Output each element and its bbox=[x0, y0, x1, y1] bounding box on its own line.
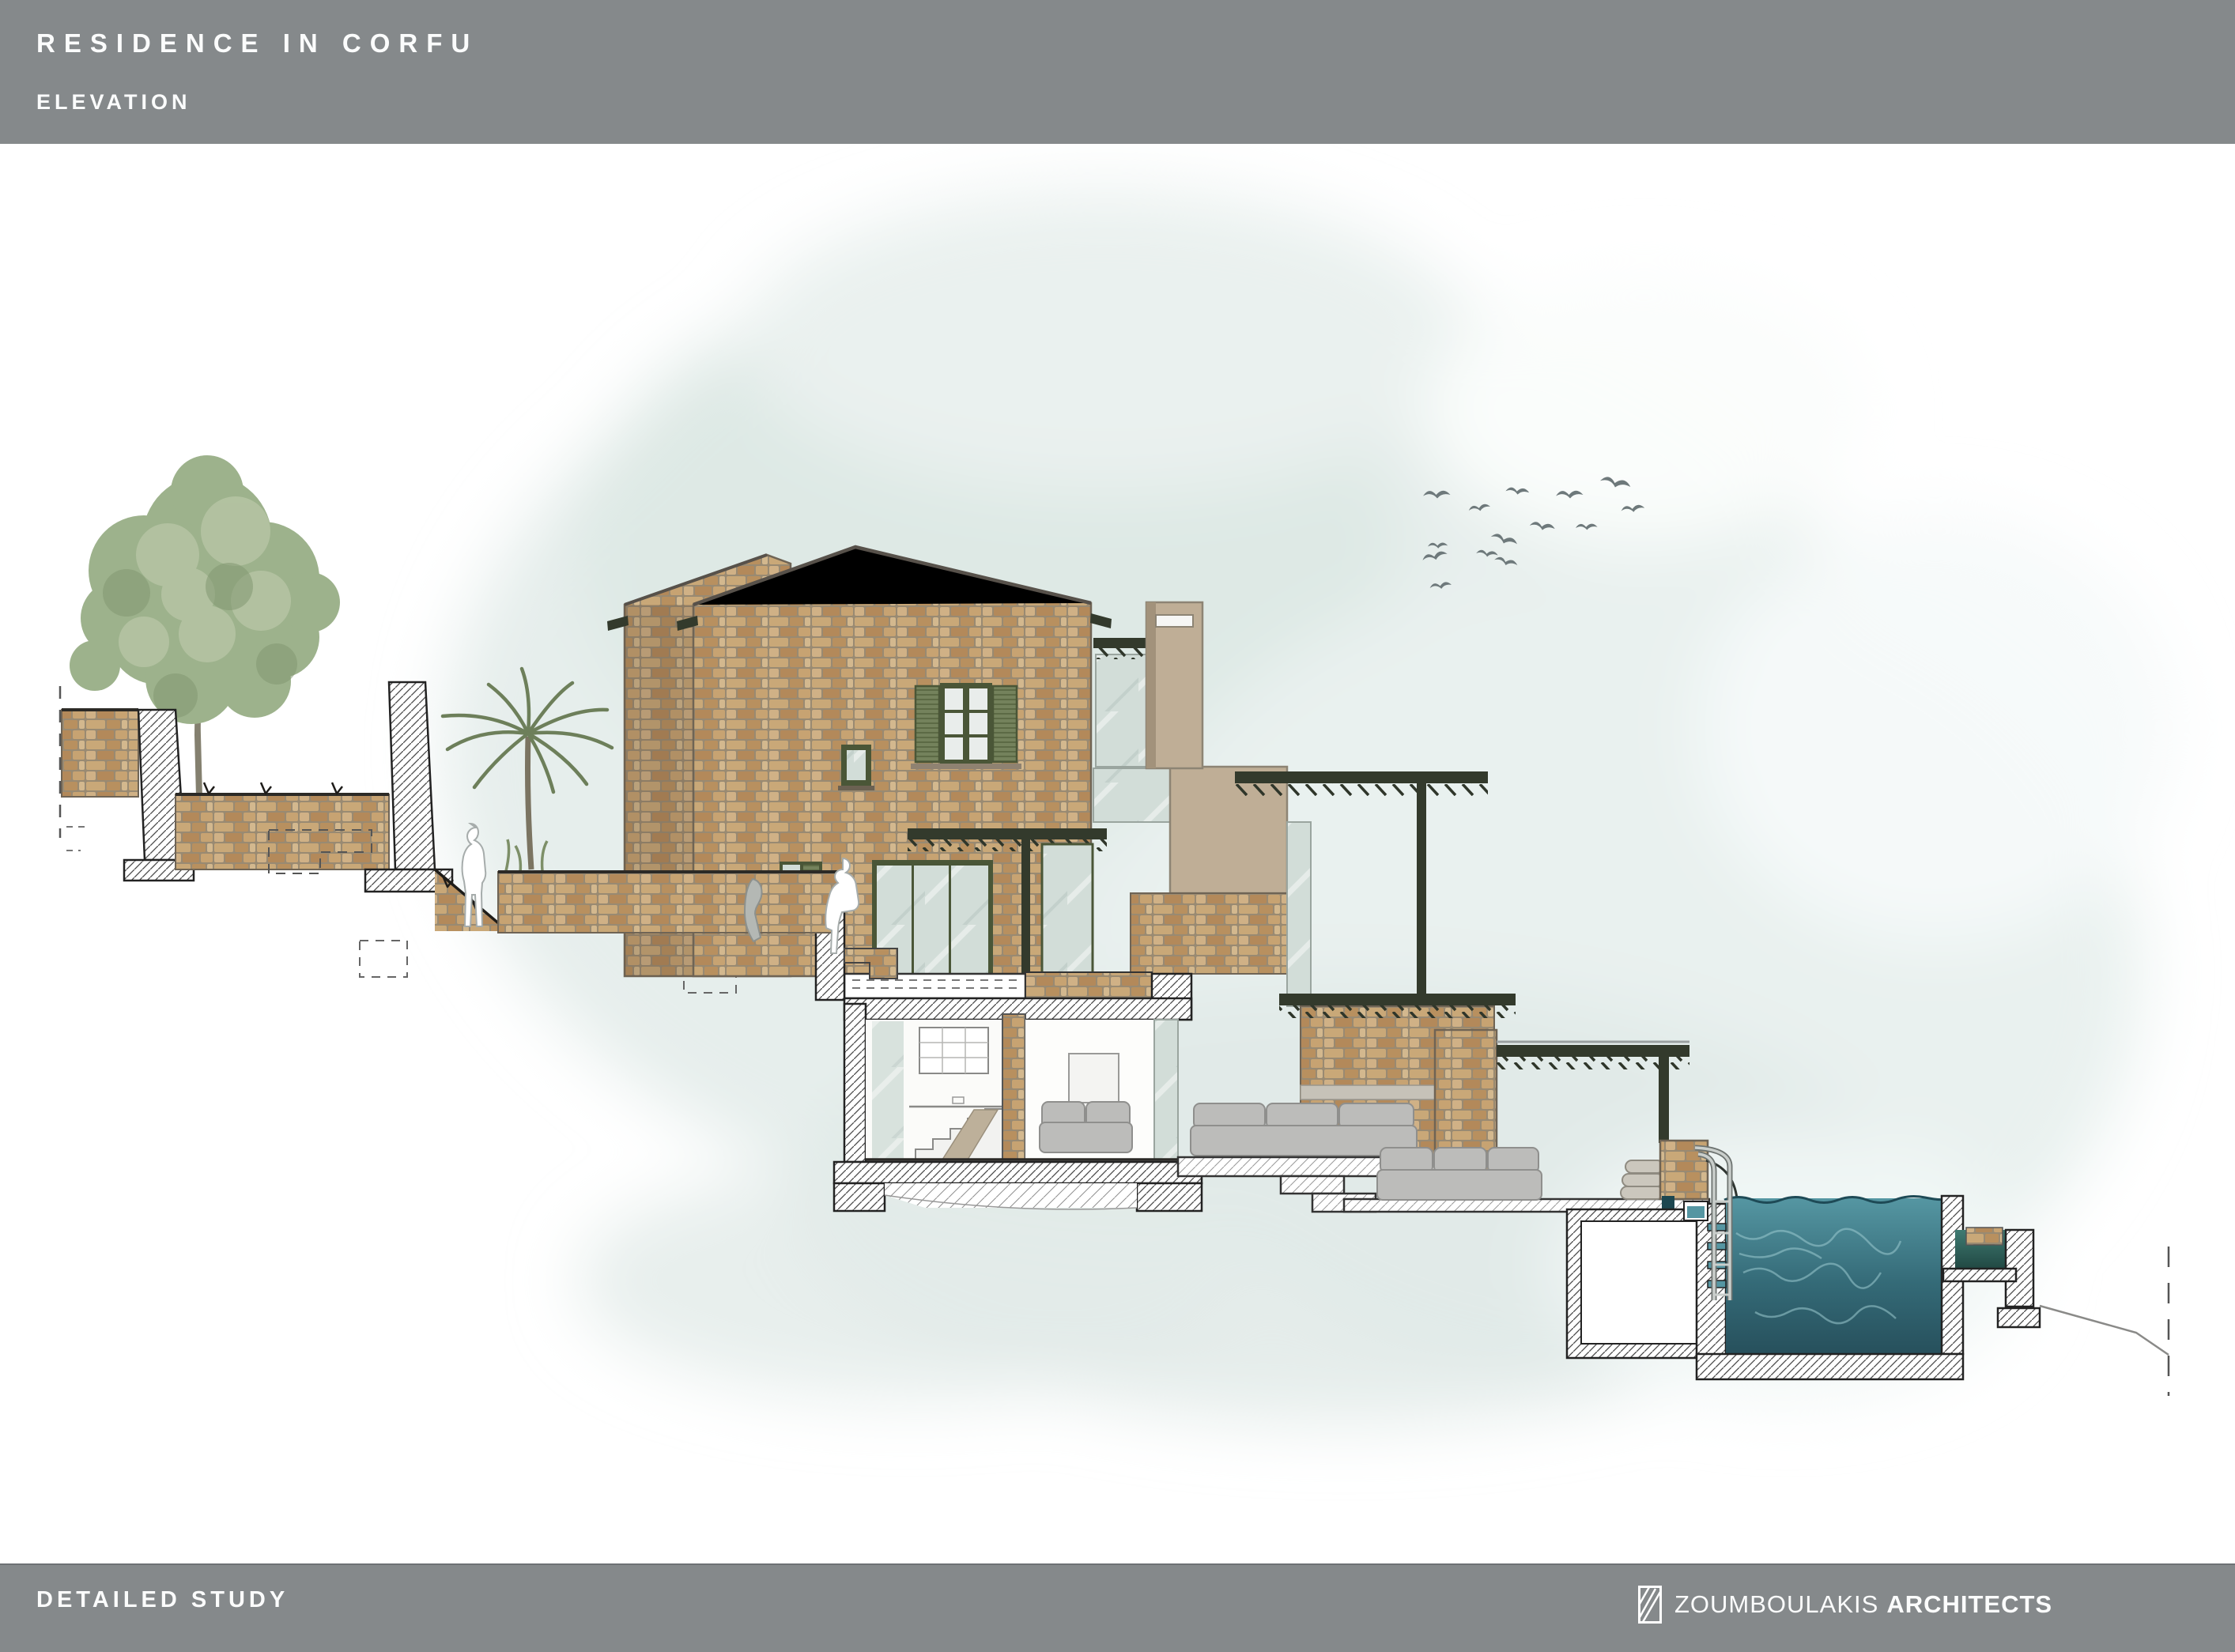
entry-pergola-beam bbox=[908, 828, 1107, 839]
outdoor-sofa-lower bbox=[1377, 1148, 1542, 1200]
brand-text: ZOUMBOULAKIS ARCHITECTS bbox=[1674, 1590, 2052, 1619]
pool-water bbox=[1726, 1198, 1942, 1354]
interior-sofa bbox=[1040, 1102, 1132, 1152]
brand-block: ZOUMBOULAKIS ARCHITECTS bbox=[1638, 1586, 2052, 1624]
small-window bbox=[838, 745, 874, 790]
shuttered-window bbox=[911, 683, 1021, 769]
drawing-type: ELEVATION bbox=[36, 90, 191, 115]
project-title: RESIDENCE IN CORFU bbox=[36, 28, 478, 58]
lower-glass-link bbox=[1093, 768, 1170, 822]
kitchen-cabinets bbox=[919, 1028, 988, 1073]
brand-name: ZOUMBOULAKIS bbox=[1674, 1590, 1878, 1619]
living-glass-wall bbox=[1154, 1020, 1178, 1160]
ground-line bbox=[2040, 1306, 2169, 1355]
garden-wall bbox=[498, 872, 838, 933]
kitchen-section bbox=[866, 1020, 1002, 1160]
corner-glass bbox=[1042, 844, 1093, 974]
title-bar: RESIDENCE IN CORFU ELEVATION bbox=[0, 0, 2235, 144]
outdoor-sofa-upper bbox=[1191, 1103, 1417, 1156]
tall-glass bbox=[1287, 822, 1311, 1006]
study-label: DETAILED STUDY bbox=[36, 1587, 289, 1613]
pergola-post bbox=[1021, 838, 1030, 974]
stone-steps bbox=[1621, 1160, 1663, 1199]
brand-logo-icon bbox=[1638, 1586, 1662, 1624]
wall-picture bbox=[1069, 1054, 1119, 1103]
elevation-drawing bbox=[0, 0, 2235, 1650]
brand-suffix: ARCHITECTS bbox=[1886, 1590, 2052, 1619]
living-room-section bbox=[1025, 1020, 1178, 1160]
upper-glass-link bbox=[1096, 654, 1148, 767]
chimney-vent bbox=[1156, 615, 1193, 627]
footer-bar: DETAILED STUDY ZOUMBOULAKIS ARCHITECTS bbox=[0, 1563, 2235, 1652]
equipment-room bbox=[1567, 1209, 1708, 1358]
stone-base-band bbox=[1131, 893, 1287, 974]
terrace-pergola-beam bbox=[1279, 994, 1516, 1005]
stone-column bbox=[1002, 1014, 1025, 1160]
